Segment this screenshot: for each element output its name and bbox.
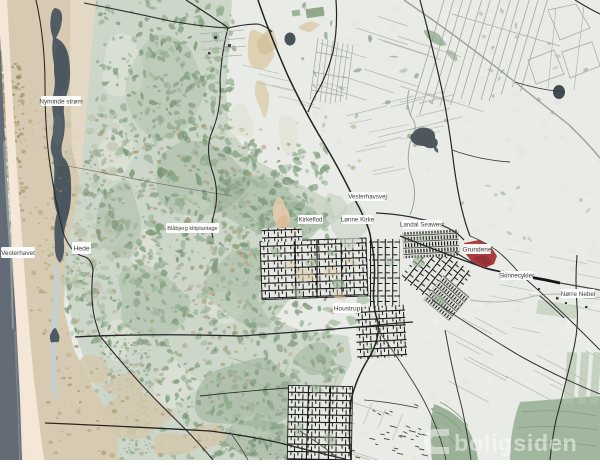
svg-text:Hede: Hede — [73, 245, 89, 252]
svg-text:Skinnecykler: Skinnecykler — [499, 273, 534, 280]
svg-text:Landal Seawest: Landal Seawest — [400, 222, 444, 229]
svg-text:Nørre Nebel: Nørre Nebel — [561, 291, 596, 298]
svg-text:boligsiden: boligsiden — [454, 430, 578, 456]
svg-text:Vesterhavet: Vesterhavet — [1, 250, 35, 257]
svg-text:Nyminde strøm: Nyminde strøm — [39, 98, 82, 105]
svg-text:Grundene: Grundene — [463, 246, 492, 253]
svg-text:Houstrup: Houstrup — [334, 305, 361, 312]
svg-text:Vesterhavsvej: Vesterhavsvej — [348, 194, 387, 201]
svg-text:Blåbjerg klitplantage: Blåbjerg klitplantage — [167, 225, 217, 232]
svg-text:Lønne Kirke: Lønne Kirke — [341, 217, 375, 224]
svg-text:Kirkeflod: Kirkeflod — [299, 217, 323, 224]
